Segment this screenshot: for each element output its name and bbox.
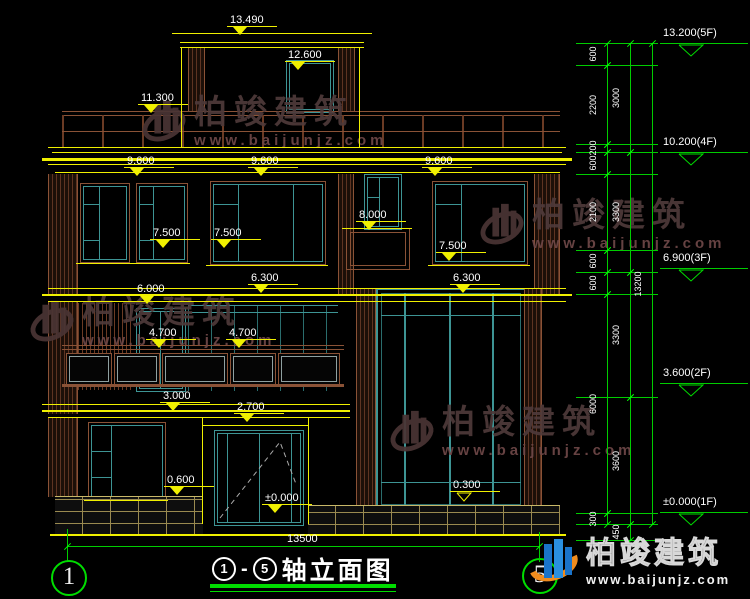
watermark-logo-icon — [388, 405, 436, 459]
floor-band — [42, 410, 350, 412]
elevation-label: ±0.000 — [265, 492, 299, 504]
elevation-label: 7.500 — [153, 227, 181, 239]
balcony-panel — [230, 353, 276, 385]
floor-band — [42, 294, 572, 296]
level-triangle-icon — [678, 44, 704, 58]
level-line — [660, 383, 748, 384]
elevation-label: 9.600 — [425, 155, 453, 167]
elevation-label: 9.600 — [127, 155, 155, 167]
title-underline-thin — [210, 591, 396, 592]
level-triangle-icon — [678, 269, 704, 283]
window-sill — [132, 263, 190, 264]
elevation-triangle-icon — [130, 168, 144, 176]
dimension-line — [630, 43, 631, 540]
axis-circle-from: 1 — [212, 557, 236, 581]
planter-top-line — [342, 228, 412, 229]
watermark: 柏竣建筑 www.baijunjz.com — [388, 405, 635, 459]
watermark-logo-icon — [478, 198, 526, 252]
elevation-triangle-icon — [152, 340, 166, 348]
dimension-text: 3600 — [611, 439, 621, 483]
brand-logo: 柏竣建筑 www.baijunjz.com — [528, 536, 730, 590]
window — [80, 183, 130, 263]
elevation-triangle-icon — [170, 487, 184, 495]
elevation-label: 12.600 — [288, 49, 322, 61]
elevation-triangle-icon — [144, 105, 158, 113]
wall-pilaster — [356, 288, 376, 505]
elevation-triangle-icon — [232, 340, 246, 348]
title-underline-thick — [210, 584, 396, 588]
balcony-panel — [66, 353, 112, 385]
level-triangle-icon — [678, 153, 704, 167]
balcony-panel — [278, 353, 340, 385]
elevation-label: 7.500 — [439, 240, 467, 252]
roof-slab-line — [172, 33, 372, 34]
window-sill — [76, 263, 132, 264]
elevation-triangle-icon — [166, 403, 180, 411]
penthouse-wall-edge — [359, 48, 360, 147]
elevation-triangle-icon — [254, 285, 268, 293]
porch-post — [308, 417, 309, 524]
elevation-label: 3.000 — [163, 390, 191, 402]
floor-band-line — [48, 301, 566, 302]
elevation-triangle-icon — [456, 285, 470, 293]
dimension-line — [607, 43, 608, 524]
elevation-label: 13.490 — [230, 14, 264, 26]
wall-pilaster — [48, 174, 78, 294]
window-sill — [428, 265, 530, 266]
elevation-label: 0.300 — [453, 479, 481, 491]
elevation-triangle-icon — [240, 414, 254, 422]
elevation-label: 11.300 — [141, 92, 174, 104]
watermark-logo-icon — [28, 295, 76, 349]
level-line — [660, 43, 748, 44]
level-label: 13.200(5F) — [663, 27, 717, 39]
elevation-label: 2.700 — [237, 401, 265, 413]
stone-base — [308, 505, 560, 536]
cornice-line — [48, 164, 566, 165]
window-sill — [206, 265, 328, 266]
dimension-text: 13200 — [633, 262, 643, 306]
elevation-triangle-icon — [140, 296, 154, 304]
elevation-label: 6.300 — [251, 272, 279, 284]
title-text: 轴立面图 — [282, 551, 394, 587]
elevation-label: 7.500 — [214, 227, 242, 239]
title-dash: - — [241, 558, 248, 581]
brand-logo-icon — [528, 536, 578, 590]
width-dimension: 13500 — [287, 533, 318, 545]
planter-box — [346, 228, 410, 270]
floor-band-line — [42, 404, 350, 405]
elevation-triangle-icon — [456, 492, 472, 502]
elevation-label: 0.600 — [167, 474, 195, 486]
dimension-text: 600 — [588, 141, 598, 185]
axis-bubble-1: 1 — [51, 560, 87, 596]
porch-post — [202, 417, 203, 524]
level-label: 10.200(4F) — [663, 136, 717, 148]
cornice-line — [52, 152, 562, 153]
elevation-triangle-icon — [233, 27, 247, 35]
dimension-text: 6000 — [588, 382, 598, 426]
roof-beam-top — [180, 42, 364, 43]
elevation-triangle-icon — [442, 253, 456, 261]
balcony-panel — [114, 353, 160, 385]
roof-beam-bottom — [180, 47, 364, 48]
dimension-text: 2100 — [588, 190, 598, 234]
cornice-eave — [42, 158, 572, 161]
curtain-wall-window — [376, 288, 526, 510]
elevation-label: 4.700 — [149, 327, 177, 339]
cornice-line — [48, 147, 566, 148]
stone-base — [55, 496, 203, 535]
elevation-triangle-icon — [156, 240, 170, 248]
balcony-rail-bottom — [62, 384, 344, 387]
watermark: 柏竣建筑 www.baijunjz.com — [478, 198, 725, 252]
elevation-triangle-icon — [254, 168, 268, 176]
brand-url: www.baijunjz.com — [586, 572, 730, 587]
porch-beam — [202, 425, 309, 426]
wall-pilaster — [48, 417, 78, 497]
level-triangle-icon — [678, 384, 704, 398]
elevation-triangle-icon — [362, 222, 376, 230]
balcony-panel — [162, 353, 228, 385]
door-swing-dashed-line — [216, 432, 300, 522]
balcony-rail — [62, 349, 344, 350]
dimension-text: 3000 — [611, 76, 621, 120]
elevation-triangle-icon — [217, 240, 231, 248]
floor-band-line — [48, 417, 350, 418]
level-label: 3.600(2F) — [663, 367, 711, 379]
drawing-title: 1 - 5 轴立面图 — [212, 551, 394, 587]
window — [88, 422, 166, 500]
dimension-text: 600 — [588, 32, 598, 76]
dimension-text: 300 — [588, 497, 598, 541]
level-line — [660, 512, 748, 513]
level-line — [660, 268, 748, 269]
floor-band-line — [48, 288, 566, 289]
wall-pilaster — [524, 288, 542, 505]
dimension-line — [68, 546, 540, 547]
window-wide — [210, 181, 326, 265]
dimension-text: 2200 — [588, 83, 598, 127]
dimension-text: 600 — [588, 261, 598, 305]
cad-elevation-drawing: 柏竣建筑 www.baijunjz.com 柏竣建筑 www.baijunjz.… — [0, 0, 750, 599]
brand-name: 柏竣建筑 — [586, 539, 730, 569]
elevation-label: 6.300 — [453, 272, 481, 284]
level-label: ±0.000(1F) — [663, 496, 717, 508]
elevation-label: 8.000 — [359, 209, 387, 221]
dimension-line — [652, 43, 653, 524]
level-triangle-icon — [678, 513, 704, 527]
penthouse-wall-edge — [181, 48, 182, 147]
elevation-triangle-icon — [268, 505, 282, 513]
watermark-brand: 柏竣建筑 — [532, 198, 725, 233]
dimension-text: 3300 — [611, 190, 621, 234]
level-line — [660, 152, 748, 153]
window — [136, 183, 188, 263]
dimension-text: 3300 — [611, 313, 621, 357]
elevation-label: 4.700 — [229, 327, 257, 339]
window-sill — [84, 500, 168, 501]
elevation-label: 6.000 — [137, 283, 165, 295]
elevation-triangle-icon — [428, 168, 442, 176]
axis-circle-to: 5 — [253, 557, 277, 581]
level-label: 6.900(3F) — [663, 252, 711, 264]
elevation-triangle-icon — [291, 62, 305, 70]
elevation-label: 9.600 — [251, 155, 279, 167]
